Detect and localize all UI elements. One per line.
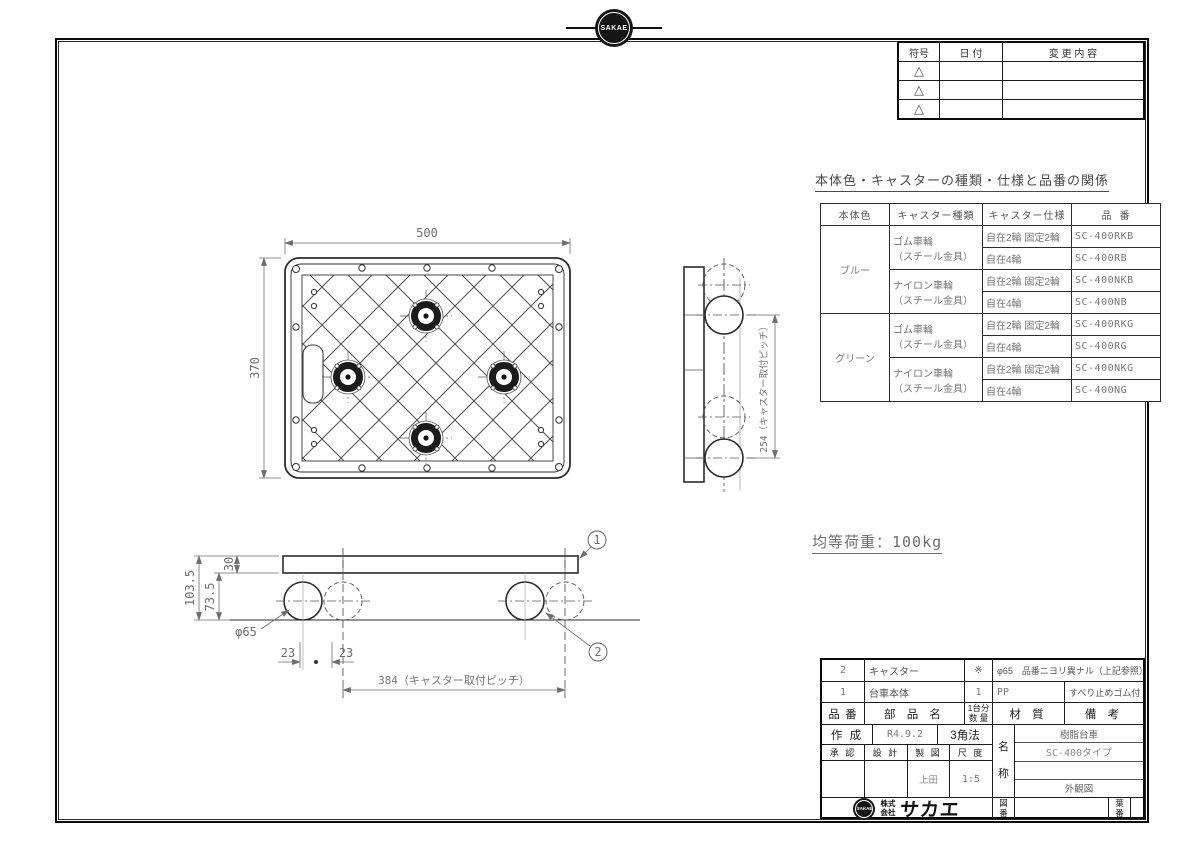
sakae-logo-text: SAKAE bbox=[857, 806, 873, 811]
revision-row: △ bbox=[898, 81, 1144, 100]
stamp-line-left bbox=[566, 27, 595, 29]
title-block: 2 キャスター ※ φ65 品番ニヨリ異ナル（上記参照） 1 台車本体 1 PP… bbox=[820, 658, 1145, 819]
sheet-label-char2: 番 bbox=[1115, 809, 1124, 818]
approved-value bbox=[822, 760, 864, 797]
part-qty-cell: 1 bbox=[964, 681, 992, 702]
revision-date-cell bbox=[940, 81, 1003, 100]
parts-header-name: 部 品 名 bbox=[864, 702, 964, 724]
projection-method: 3角法 bbox=[937, 724, 992, 744]
dim-offset-left: 23 bbox=[281, 646, 295, 660]
created-label: 作 成 bbox=[822, 724, 872, 744]
revision-row: △ bbox=[898, 62, 1144, 81]
name-label-char2: 称 bbox=[998, 768, 1009, 781]
stamp-line-right bbox=[633, 27, 662, 29]
drawing-sheet-page: { "company": { "stamp": "SAKAE", "kabush… bbox=[0, 0, 1200, 848]
front-view: 103.5 73.5 30 φ65 23 23 384（キャスター取付ピッチ） … bbox=[183, 531, 640, 698]
parts-header-no: 品 番 bbox=[822, 702, 864, 724]
parts-header-remarks: 備 考 bbox=[1064, 702, 1143, 724]
name-area-blank-line bbox=[1015, 762, 1143, 780]
top-view: 500 370 bbox=[248, 226, 570, 478]
revision-change-cell bbox=[1003, 62, 1145, 81]
company-name: サカエ bbox=[899, 797, 962, 819]
revision-triangle-icon: △ bbox=[914, 82, 924, 97]
dim-top-height: 370 bbox=[248, 357, 262, 379]
draft-value: 上田 bbox=[907, 760, 949, 797]
dim-front-pitch: 384（キャスター取付ピッチ） bbox=[378, 674, 530, 687]
name-label-char1: 名 bbox=[998, 741, 1009, 754]
dim-under-height: 73.5 bbox=[203, 583, 217, 612]
revision-triangle-icon: △ bbox=[914, 101, 924, 116]
revision-change-cell bbox=[1003, 81, 1145, 100]
design-value bbox=[864, 760, 907, 797]
created-date: R4.9.2 bbox=[872, 724, 937, 744]
top-view-height-dim bbox=[259, 258, 281, 478]
top-view-width-dim bbox=[285, 238, 570, 254]
dim-wheel-dia: φ65 bbox=[235, 625, 257, 639]
part-no-cell: 1 bbox=[822, 681, 864, 702]
parts-header-material: 材 質 bbox=[992, 702, 1064, 724]
part-remarks-cell: すべり止めゴム付 bbox=[1064, 681, 1143, 702]
company-prefix-line2: 会社 bbox=[880, 809, 895, 817]
parts-header-qty-line2: 数 量 bbox=[969, 714, 988, 723]
sheet-number-value bbox=[1130, 797, 1143, 819]
part-name-cell: 台車本体 bbox=[864, 681, 964, 702]
part-no-cell: 2 bbox=[822, 660, 864, 681]
dim-offset-right: 23 bbox=[339, 646, 353, 660]
revision-row: △ bbox=[898, 100, 1144, 120]
part-material-cell: φ65 品番ニヨリ異ナル（上記参照） bbox=[992, 660, 1143, 681]
revision-change-cell bbox=[1003, 100, 1145, 120]
revision-header-row: 符号 日 付 変 更 内 容 bbox=[898, 42, 1144, 62]
revision-table: 符号 日 付 変 更 内 容 △ △ △ bbox=[897, 41, 1145, 120]
part-qty-cell: ※ bbox=[964, 660, 992, 681]
view-type: 外観図 bbox=[1015, 780, 1143, 797]
sheet-number-label: 葉 番 bbox=[1108, 797, 1130, 819]
dim-plate-thickness: 30 bbox=[222, 557, 236, 571]
product-model: SC-400タイプ bbox=[1015, 743, 1143, 761]
company-prefix: 株式 会社 bbox=[880, 800, 895, 817]
drawing-number-value bbox=[1014, 797, 1108, 819]
balloon-1-number: 1 bbox=[593, 533, 600, 547]
company-cell: SAKAE 株式 会社 サカエ bbox=[822, 797, 992, 819]
dim-overall-height: 103.5 bbox=[183, 570, 197, 606]
revision-header-symbol: 符号 bbox=[898, 42, 940, 62]
product-name: 樹脂台車 bbox=[1015, 725, 1143, 743]
draft-label: 製 図 bbox=[907, 744, 949, 760]
parts-header-qty: 1台分 数 量 bbox=[964, 702, 992, 724]
name-area: 樹脂台車 SC-400タイプ 外観図 bbox=[1014, 724, 1143, 797]
dwg-label-char2: 番 bbox=[999, 809, 1008, 818]
part-material-cell: PP bbox=[992, 681, 1064, 702]
side-view: 254（キャスター取付ピッチ） bbox=[684, 258, 780, 492]
sakae-stamp-text: SAKAE bbox=[600, 25, 627, 32]
revision-header-date: 日 付 bbox=[940, 42, 1003, 62]
name-label-strip: 名 称 bbox=[992, 724, 1014, 797]
handle-slot bbox=[303, 345, 323, 403]
scale-value: 1:5 bbox=[949, 760, 992, 797]
dim-top-width: 500 bbox=[416, 226, 438, 240]
revision-header-change: 変 更 内 容 bbox=[1003, 42, 1145, 62]
drawing-number-label: 図 番 bbox=[992, 797, 1014, 819]
sakae-logo-icon: SAKAE bbox=[853, 798, 875, 820]
part-name-cell: キャスター bbox=[864, 660, 964, 681]
approved-label: 承 認 bbox=[822, 744, 864, 760]
sakae-stamp-icon: SAKAE bbox=[595, 9, 633, 47]
design-label: 設 計 bbox=[864, 744, 907, 760]
revision-date-cell bbox=[940, 100, 1003, 120]
dim-side-pitch: 254（キャスター取付ピッチ） bbox=[758, 321, 770, 452]
balloon-2-number: 2 bbox=[594, 645, 601, 659]
scale-label: 尺 度 bbox=[949, 744, 992, 760]
revision-date-cell bbox=[940, 62, 1003, 81]
revision-triangle-icon: △ bbox=[914, 63, 924, 78]
